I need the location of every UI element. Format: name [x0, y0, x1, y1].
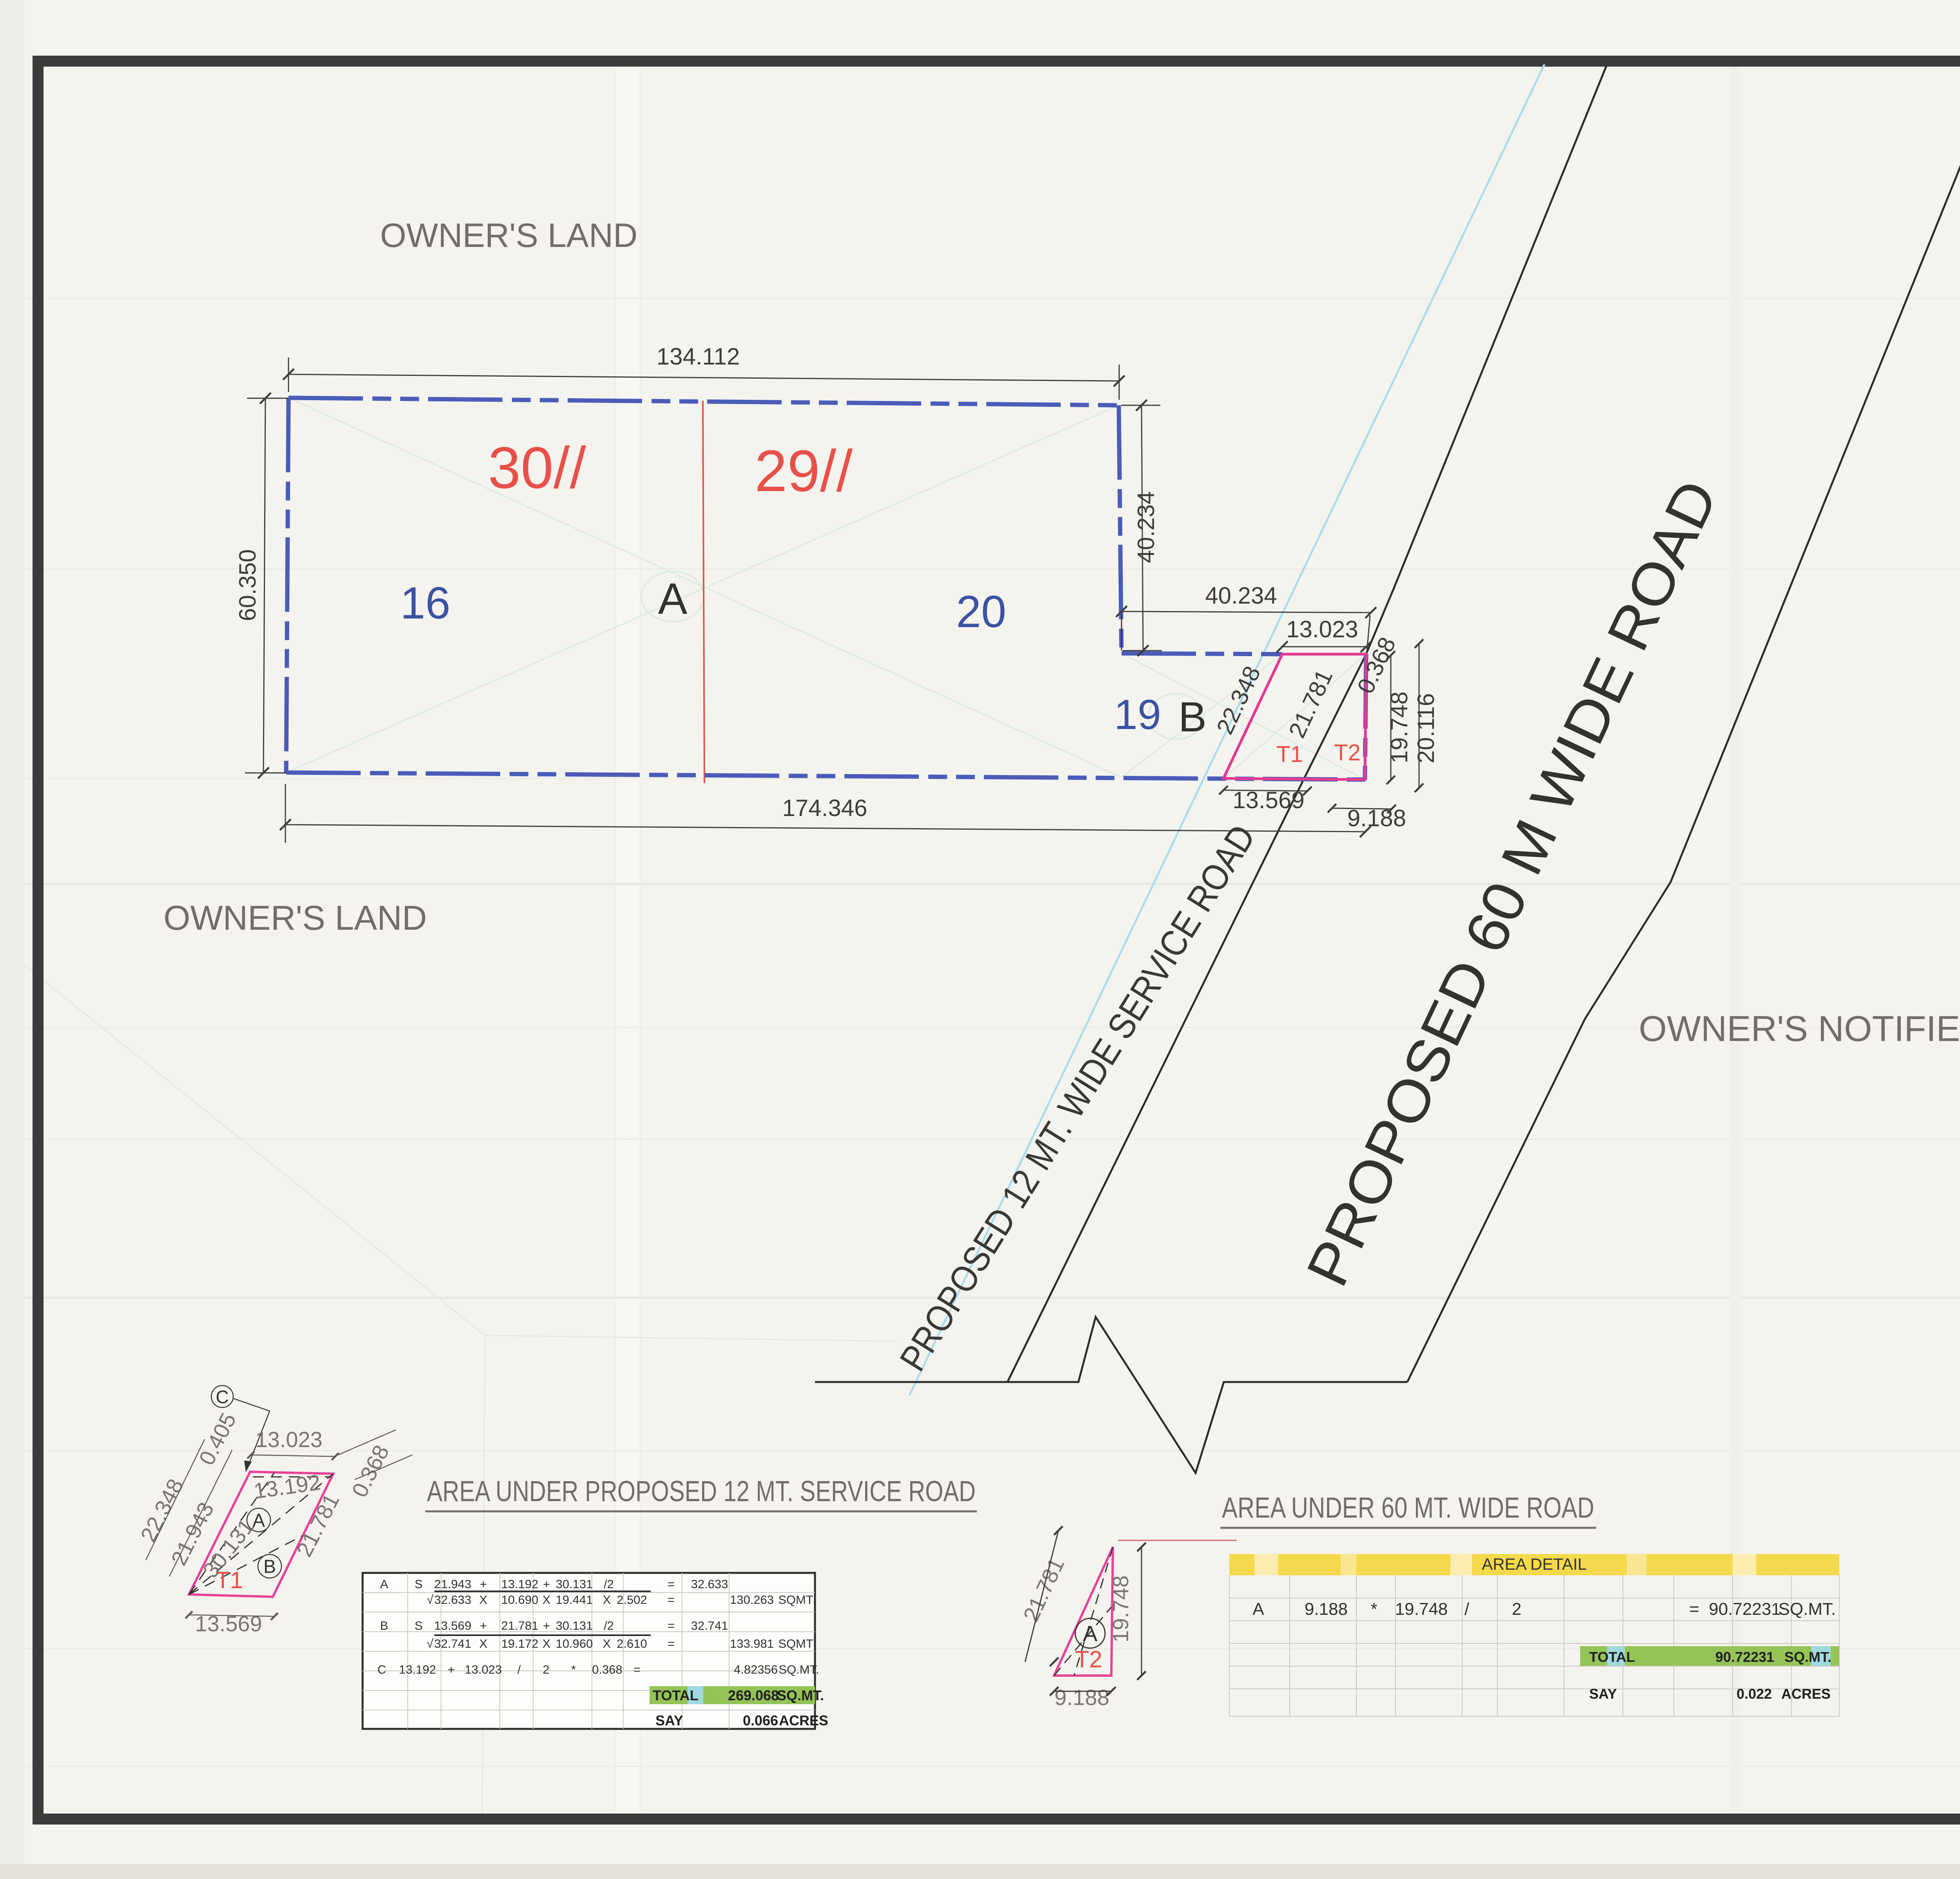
svg-text:SQ.MT.: SQ.MT.	[1779, 1600, 1836, 1619]
svg-text:19: 19	[1114, 691, 1161, 738]
svg-text:+: +	[543, 1619, 550, 1632]
svg-text:19.441: 19.441	[556, 1593, 593, 1607]
svg-text:AREA UNDER PROPOSED 12 MT. SER: AREA UNDER PROPOSED 12 MT. SERVICE ROAD	[427, 1475, 976, 1507]
svg-text:4.82356: 4.82356	[734, 1663, 778, 1676]
svg-text:C: C	[216, 1387, 229, 1407]
svg-text:=: =	[668, 1593, 675, 1607]
svg-text:40.234: 40.234	[1133, 491, 1159, 563]
svg-text:T2: T2	[1075, 1646, 1102, 1672]
svg-text:13.569: 13.569	[1232, 787, 1305, 813]
svg-text:2.610: 2.610	[617, 1637, 647, 1650]
svg-text:T1: T1	[1276, 742, 1303, 767]
svg-text:X: X	[479, 1593, 488, 1607]
svg-text:A: A	[380, 1577, 388, 1591]
svg-text:AREA UNDER 60 MT. WIDE ROAD: AREA UNDER 60 MT. WIDE ROAD	[1222, 1491, 1594, 1524]
svg-text:+: +	[480, 1619, 487, 1632]
svg-text:C: C	[377, 1663, 386, 1676]
svg-text:X: X	[603, 1593, 611, 1607]
svg-text:32.633: 32.633	[434, 1593, 472, 1607]
svg-text:ACRES: ACRES	[1781, 1686, 1831, 1702]
svg-text:10.960: 10.960	[556, 1637, 593, 1650]
svg-text:A: A	[658, 574, 688, 623]
svg-text:SQ.MT.: SQ.MT.	[779, 1663, 819, 1676]
svg-text:SAY: SAY	[1589, 1686, 1617, 1702]
svg-text:40.234: 40.234	[1205, 582, 1277, 609]
svg-text:OWNER'S NOTIFIED SEZ: OWNER'S NOTIFIED SEZ	[1639, 1009, 1960, 1049]
svg-text:*: *	[1370, 1600, 1377, 1619]
svg-text:20: 20	[956, 587, 1006, 637]
svg-text:√: √	[426, 1637, 433, 1650]
svg-text:X: X	[603, 1637, 611, 1650]
svg-text:AREA DETAIL: AREA DETAIL	[1482, 1555, 1587, 1573]
svg-text:90.72231: 90.72231	[1715, 1649, 1774, 1665]
svg-text:16: 16	[400, 578, 450, 628]
svg-text:2.502: 2.502	[617, 1593, 647, 1607]
svg-text:T2: T2	[1334, 740, 1361, 765]
svg-text:TOTAL: TOTAL	[653, 1687, 699, 1703]
svg-text:13.023: 13.023	[1286, 616, 1358, 642]
svg-text:29//: 29//	[755, 438, 853, 504]
svg-text:60.350: 60.350	[234, 549, 261, 621]
svg-text:=: =	[1689, 1600, 1699, 1619]
svg-text:13.192: 13.192	[501, 1577, 539, 1591]
svg-text:13.569: 13.569	[434, 1619, 472, 1632]
svg-text:90.72231: 90.72231	[1709, 1600, 1781, 1619]
svg-text:21.781: 21.781	[501, 1619, 539, 1632]
svg-text:B: B	[263, 1556, 276, 1577]
svg-text:X: X	[543, 1593, 551, 1607]
svg-text:=: =	[668, 1577, 675, 1591]
svg-text:X: X	[543, 1637, 551, 1650]
svg-text:130.263: 130.263	[730, 1593, 774, 1607]
svg-text:10.690: 10.690	[501, 1593, 539, 1607]
svg-text:A: A	[1083, 1621, 1098, 1646]
svg-text:=: =	[668, 1619, 675, 1632]
svg-text:SQMT: SQMT	[778, 1637, 813, 1650]
svg-text:30//: 30//	[488, 435, 586, 501]
svg-text:9.188: 9.188	[1054, 1685, 1109, 1710]
svg-text:19.172: 19.172	[501, 1637, 539, 1650]
svg-text:9.188: 9.188	[1347, 805, 1406, 831]
svg-text:A: A	[1252, 1600, 1264, 1619]
svg-text:133.981: 133.981	[730, 1637, 774, 1650]
svg-text:=: =	[668, 1637, 675, 1650]
svg-text:32.741: 32.741	[691, 1619, 728, 1632]
svg-text:OWNER'S LAND: OWNER'S LAND	[163, 898, 427, 937]
svg-text:21.943: 21.943	[434, 1577, 472, 1591]
svg-text:134.112: 134.112	[657, 343, 740, 370]
svg-text:32.741: 32.741	[434, 1637, 472, 1650]
svg-text:0.022: 0.022	[1737, 1686, 1772, 1702]
svg-text:13.023: 13.023	[465, 1663, 502, 1676]
svg-text:32.633: 32.633	[691, 1577, 728, 1591]
svg-text:S: S	[415, 1619, 423, 1632]
svg-text:+: +	[480, 1577, 487, 1591]
svg-text:9.188: 9.188	[1305, 1600, 1348, 1619]
svg-text:174.346: 174.346	[782, 795, 867, 821]
svg-text:X: X	[479, 1637, 488, 1650]
svg-text:30.131: 30.131	[556, 1619, 593, 1632]
svg-text:/: /	[1465, 1600, 1470, 1619]
svg-text:S: S	[415, 1577, 423, 1591]
svg-text:SAY: SAY	[655, 1712, 683, 1728]
svg-text:269.068: 269.068	[728, 1687, 779, 1703]
svg-text:+: +	[448, 1663, 455, 1676]
svg-text:13.023: 13.023	[255, 1427, 322, 1452]
svg-text:19.748: 19.748	[1108, 1575, 1133, 1642]
svg-text:TOTAL: TOTAL	[1589, 1649, 1635, 1665]
svg-text:*: *	[571, 1663, 576, 1676]
svg-text:19.748: 19.748	[1386, 691, 1412, 764]
svg-text:/2: /2	[604, 1577, 614, 1591]
svg-text:13.192: 13.192	[399, 1663, 436, 1676]
svg-text:OWNER'S LAND: OWNER'S LAND	[380, 217, 638, 254]
svg-text:20.116: 20.116	[1413, 693, 1439, 763]
svg-text:ACRES: ACRES	[779, 1712, 828, 1728]
svg-text:2: 2	[1512, 1600, 1521, 1619]
svg-text:SQ.MT.: SQ.MT.	[1784, 1649, 1831, 1665]
svg-text:/: /	[517, 1663, 521, 1676]
svg-text:/2: /2	[604, 1619, 614, 1632]
svg-text:19.748: 19.748	[1395, 1600, 1448, 1619]
svg-text:+: +	[543, 1577, 550, 1591]
svg-text:0.368: 0.368	[592, 1663, 622, 1676]
svg-text:=: =	[633, 1663, 641, 1676]
svg-text:SQMT: SQMT	[778, 1593, 813, 1607]
svg-text:2: 2	[543, 1663, 549, 1676]
svg-text:SQ.MT.: SQ.MT.	[777, 1687, 824, 1703]
svg-text:√: √	[426, 1593, 433, 1607]
svg-text:0.066: 0.066	[743, 1712, 778, 1728]
svg-text:B: B	[380, 1619, 388, 1632]
svg-text:30.131: 30.131	[556, 1577, 593, 1591]
svg-text:B: B	[1178, 693, 1207, 740]
